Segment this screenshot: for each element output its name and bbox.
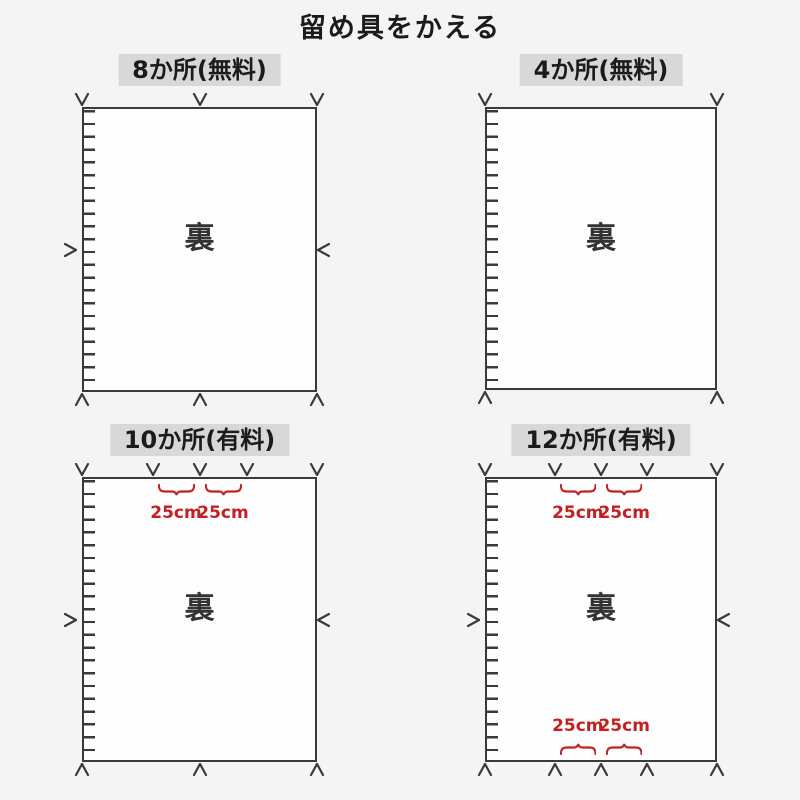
panel-8-spots-label: 8か所(無料) (118, 54, 281, 86)
fastener-arrow-down-icon (192, 463, 208, 476)
fastener-arrow-down-icon (309, 93, 325, 106)
measure-label: 25cm (150, 503, 201, 523)
fastener-arrow-up-icon (74, 393, 90, 406)
fastener-arrow-up-icon (477, 391, 493, 404)
fastener-arrow-left-icon (317, 612, 330, 628)
measure-brace-icon (158, 484, 195, 496)
measure-brace-icon (560, 743, 596, 755)
panel-10-spots: 10か所(有料) 裏 25cm25cm (82, 477, 317, 762)
panel-8-spots: 8か所(無料) 裏 (82, 107, 317, 392)
fastener-arrow-up-icon (74, 763, 90, 776)
measure-brace-icon (560, 484, 596, 496)
fastener-arrow-down-icon (74, 463, 90, 476)
back-side-label: 裏 (487, 213, 715, 257)
measure-label: 25cm (552, 716, 603, 736)
fastener-arrow-down-icon (709, 93, 725, 106)
fastener-arrow-left-icon (717, 612, 730, 628)
fastener-arrow-up-icon (547, 763, 563, 776)
fastener-arrow-up-icon (309, 763, 325, 776)
page-title: 留め具をかえる (0, 6, 800, 45)
fabric-back-sheet: 裏 (82, 107, 317, 392)
measure-label: 25cm (197, 503, 248, 523)
page: { "title": "留め具をかえる", "back_label": "裏",… (0, 0, 800, 800)
fastener-arrow-up-icon (709, 391, 725, 404)
fastener-arrow-right-icon (64, 242, 77, 258)
fastener-arrow-right-icon (64, 612, 77, 628)
fastener-arrow-down-icon (145, 463, 161, 476)
measure-brace-icon (606, 743, 642, 755)
fabric-back-sheet: 裏 (485, 107, 717, 390)
back-side-label: 裏 (84, 583, 315, 627)
measure-brace-icon (606, 484, 642, 496)
panel-10-spots-label: 10か所(有料) (110, 424, 289, 456)
fastener-arrow-down-icon (477, 93, 493, 106)
fastener-arrow-down-icon (239, 463, 255, 476)
fastener-arrow-down-icon (192, 93, 208, 106)
fastener-arrow-left-icon (317, 242, 330, 258)
measure-label: 25cm (598, 503, 649, 523)
panel-12-spots: 12か所(有料) 裏 25cm25cm25cm25cm (485, 477, 717, 762)
fastener-arrow-up-icon (192, 393, 208, 406)
fastener-arrow-up-icon (593, 763, 609, 776)
back-side-label: 裏 (84, 213, 315, 257)
measure-label: 25cm (598, 716, 649, 736)
fastener-arrow-up-icon (639, 763, 655, 776)
measure-label: 25cm (552, 503, 603, 523)
back-side-label: 裏 (487, 583, 715, 627)
fastener-arrow-up-icon (709, 763, 725, 776)
fastener-arrow-up-icon (192, 763, 208, 776)
fastener-arrow-right-icon (467, 612, 480, 628)
fastener-arrow-down-icon (593, 463, 609, 476)
fastener-arrow-up-icon (477, 763, 493, 776)
panel-12-spots-label: 12か所(有料) (511, 424, 690, 456)
fastener-arrow-down-icon (477, 463, 493, 476)
measure-brace-icon (205, 484, 242, 496)
fastener-arrow-down-icon (639, 463, 655, 476)
fastener-arrow-down-icon (74, 93, 90, 106)
fastener-arrow-down-icon (309, 463, 325, 476)
fastener-arrow-down-icon (547, 463, 563, 476)
fastener-arrow-up-icon (309, 393, 325, 406)
panel-4-spots-label: 4か所(無料) (520, 54, 683, 86)
panel-4-spots: 4か所(無料) 裏 (485, 107, 717, 390)
fastener-arrow-down-icon (709, 463, 725, 476)
